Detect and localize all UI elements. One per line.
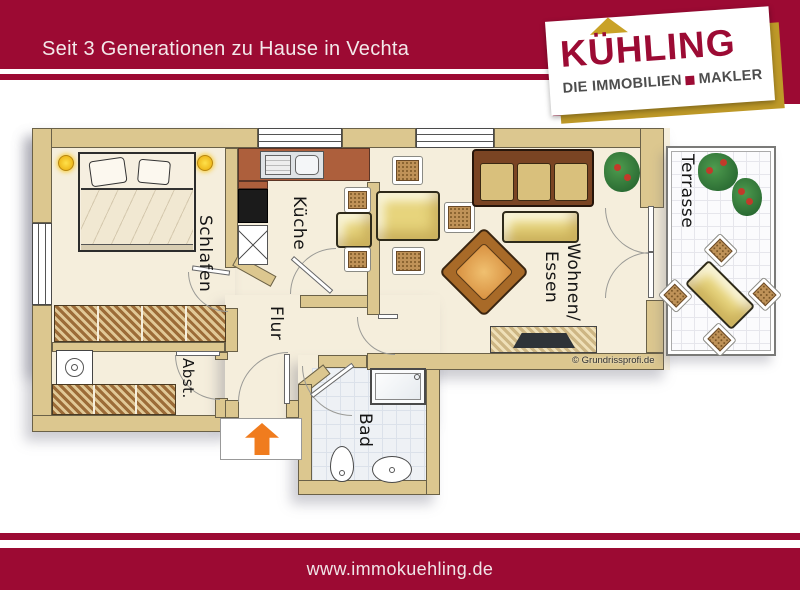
window-living [416, 128, 494, 148]
wall-top-1 [32, 128, 258, 148]
logo-square-icon [685, 75, 695, 85]
door-leaf [176, 351, 220, 356]
coffee-table-icon [502, 211, 579, 243]
wicker-chair-icon [392, 156, 423, 185]
copyright-text: © Grundrissprofi.de [572, 355, 655, 366]
lamp-icon [58, 155, 74, 171]
french-door-leaf [648, 252, 654, 298]
dining-table-icon [376, 191, 440, 241]
entry-door-leaf [284, 354, 290, 404]
wicker-chair-icon [392, 247, 425, 275]
company-logo: KÜHLING DIE IMMOBILIEN MAKLER [545, 6, 775, 115]
toilet-drain [339, 470, 345, 476]
sofa-icon [472, 149, 594, 207]
room-label-essen: Essen [541, 251, 561, 303]
window-bedroom [32, 223, 52, 305]
bed-foot [81, 244, 193, 250]
wall-bottom-left [32, 415, 235, 432]
kitchen-counter-left [238, 181, 268, 189]
plant-icon [698, 153, 738, 191]
wardrobe-divider [97, 306, 99, 341]
sofa-cushion [480, 163, 514, 201]
footer-url: www.immokuehling.de [0, 548, 800, 590]
shower-drain [414, 374, 420, 380]
entrance-landing [220, 418, 302, 460]
logo-subtitle-suffix: MAKLER [698, 67, 763, 87]
kitchen-sink-icon [260, 151, 324, 179]
header-tagline: Seit 3 Generationen zu Hause in Vechta [42, 38, 409, 61]
sink-drainer [265, 155, 291, 175]
toilet-icon [330, 446, 354, 482]
window-kitchen [258, 128, 342, 148]
stove-icon [238, 189, 268, 223]
room-label-abst: Abst. [179, 358, 197, 399]
washbasin-icon [372, 456, 412, 483]
french-door-leaf [648, 206, 654, 252]
kitchen-table-icon [336, 212, 372, 248]
wall-bath-right [426, 368, 440, 495]
wall-left-1 [32, 128, 52, 223]
shelf-icon [52, 384, 176, 415]
wall-left-2 [32, 305, 52, 432]
tv-icon [513, 333, 575, 348]
basin-drain [389, 467, 395, 473]
washing-machine-icon [56, 350, 93, 385]
bed-icon [78, 152, 196, 252]
flyer-page: Seit 3 Generationen zu Hause in Vechta K… [0, 0, 800, 590]
logo-brand-name: KÜHLING [559, 22, 737, 76]
wall-top-2 [342, 128, 416, 148]
tv-sideboard-icon [490, 326, 597, 353]
washer-door [71, 364, 78, 371]
armchair-seat [454, 242, 513, 301]
door-leaf [378, 314, 398, 319]
wicker-chair-icon [444, 202, 475, 233]
pillow-icon [88, 157, 127, 188]
room-label-schlafen: Schlafen [195, 215, 215, 292]
sofa-cushion [554, 163, 588, 201]
blanket [81, 188, 193, 244]
footer-divider-stripe [0, 533, 800, 540]
wicker-chair-icon [344, 187, 371, 213]
pillow-icon [137, 159, 171, 186]
room-label-terrasse: Terrasse [677, 154, 697, 228]
room-label-kueche: Küche [289, 196, 309, 250]
shelf-divider [93, 385, 95, 414]
logo-subtitle-prefix: DIE IMMOBILIEN [562, 73, 682, 97]
plant-icon [732, 178, 762, 216]
lamp-icon [197, 155, 213, 171]
shelf-divider [135, 385, 137, 414]
wardrobe-divider [141, 306, 143, 341]
wall-bath-bottom [298, 480, 440, 495]
sink-basin [295, 155, 319, 175]
wall-top-3 [494, 128, 664, 148]
sofa-cushion [517, 163, 551, 201]
room-label-bad: Bad [355, 413, 375, 447]
entrance-arrow-icon [245, 423, 279, 455]
room-label-flur: Flur [266, 306, 286, 340]
room-label-wohnen: Wohnen/ [563, 243, 583, 321]
